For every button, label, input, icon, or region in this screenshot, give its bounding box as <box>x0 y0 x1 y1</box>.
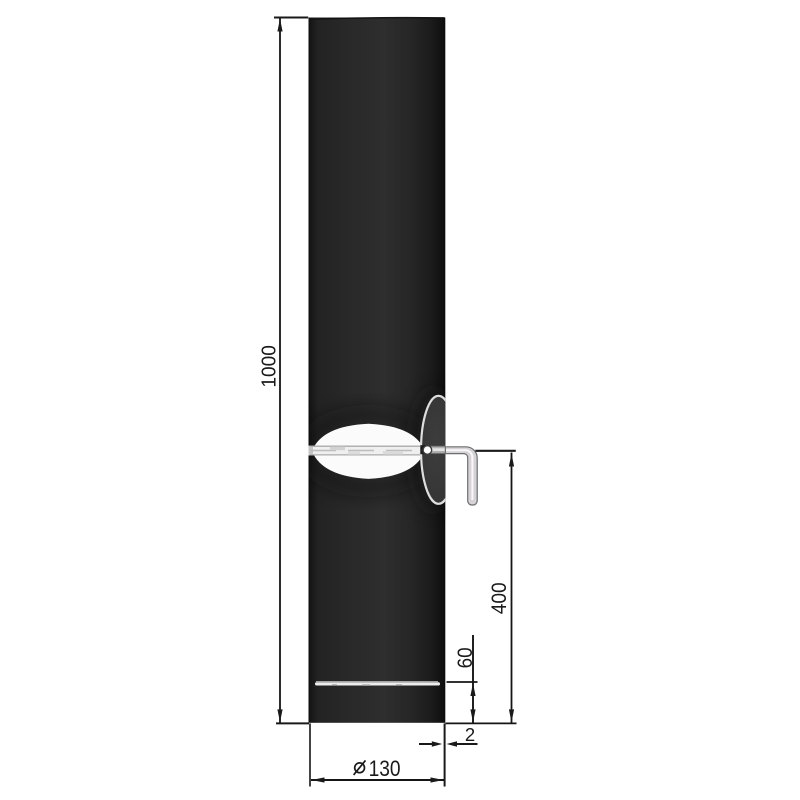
svg-text:400: 400 <box>488 582 511 614</box>
svg-text:60: 60 <box>454 647 477 668</box>
svg-text:2: 2 <box>465 724 475 745</box>
svg-text:1000: 1000 <box>258 345 281 388</box>
svg-text:130: 130 <box>369 756 401 781</box>
